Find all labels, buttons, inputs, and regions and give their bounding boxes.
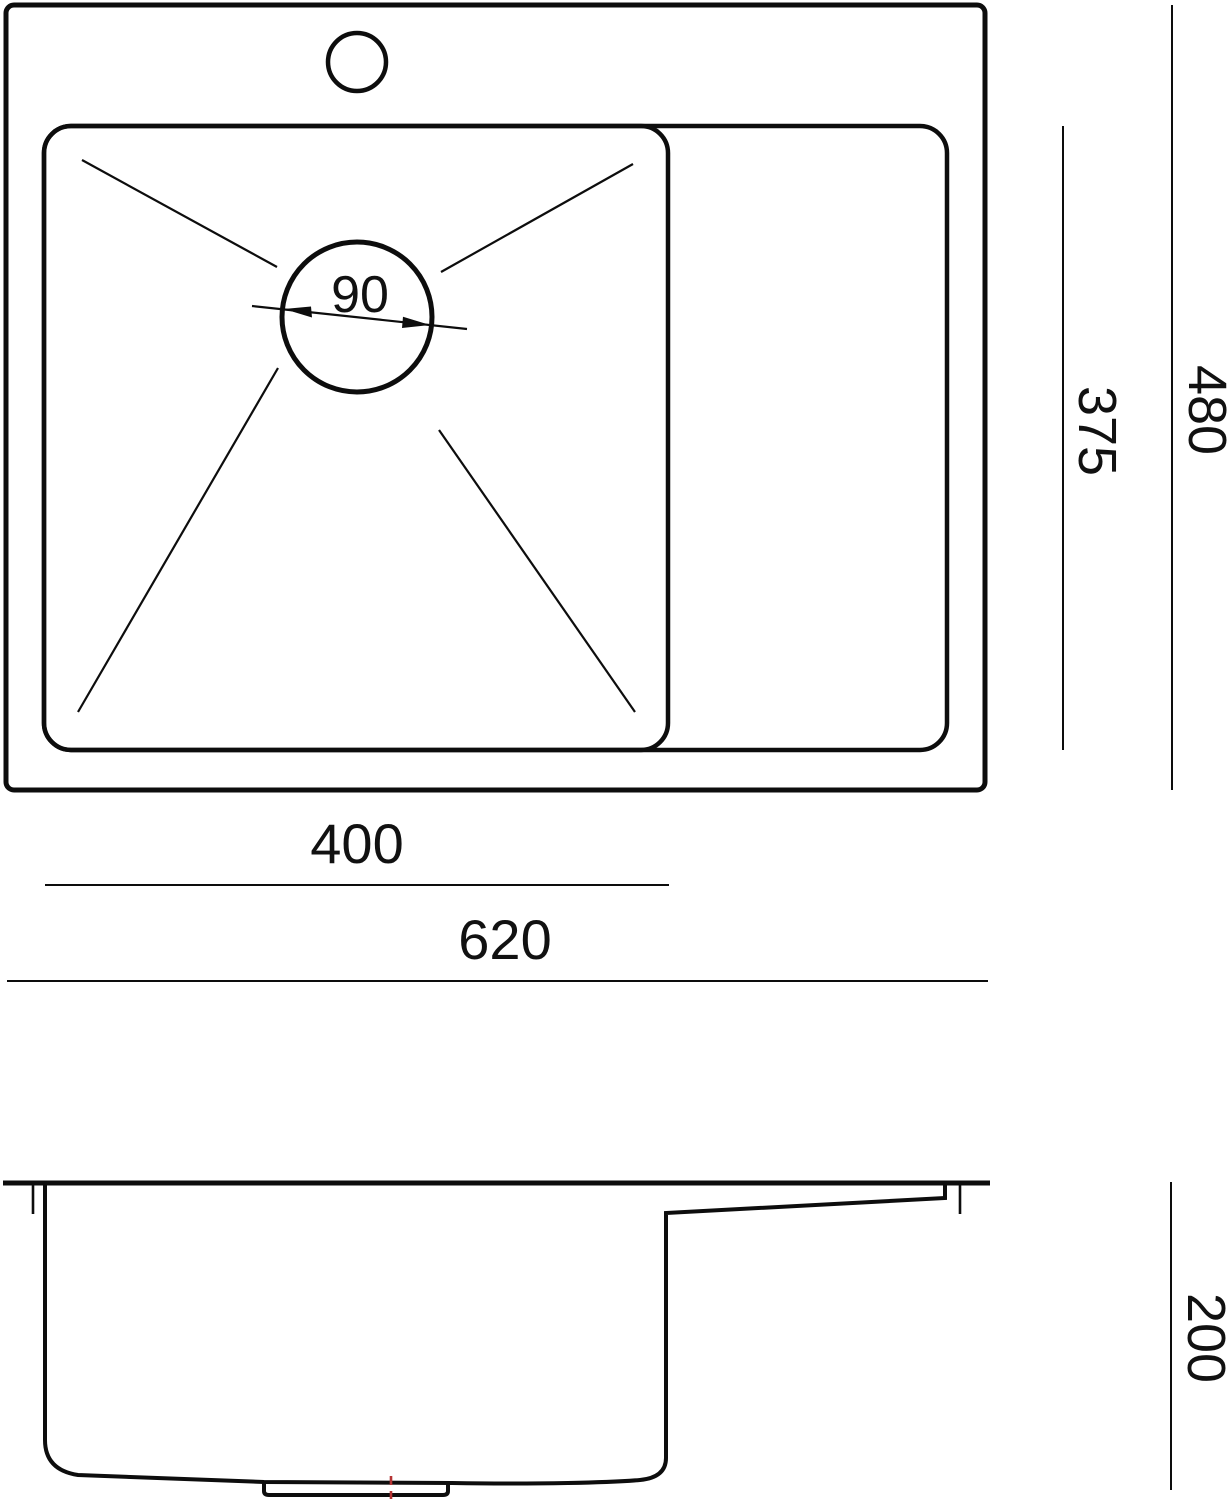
dim-label-200: 200 <box>1176 1293 1230 1383</box>
corner-leader-line-bottom-right <box>439 430 635 712</box>
dim-label-375: 375 <box>1067 386 1127 476</box>
bowl-outline <box>44 126 668 750</box>
outer-rim-outline <box>6 5 985 790</box>
dim-label-620: 620 <box>458 908 551 971</box>
side-section-view: 200 <box>3 1182 1230 1499</box>
faucet-hole <box>328 33 386 91</box>
plan-dimension-lines: 375 480 400 620 <box>7 5 1230 981</box>
drainboard-outline <box>44 126 947 750</box>
drain-diameter-label: 90 <box>331 266 389 324</box>
dim-label-400: 400 <box>310 812 403 875</box>
dim-label-480: 480 <box>1177 365 1230 455</box>
diameter-arrowhead-left-icon <box>284 307 312 318</box>
corner-leader-line-bottom-left <box>78 368 278 712</box>
drawing-svg: 90 375 480 400 620 200 <box>0 0 1230 1500</box>
sink-dimension-drawing: 90 375 480 400 620 200 <box>0 0 1230 1500</box>
corner-leader-line-top-left <box>82 160 277 267</box>
diameter-arrowhead-right-icon <box>402 317 430 328</box>
bowl-section-outline <box>45 1183 945 1484</box>
top-view: 90 <box>6 5 985 790</box>
corner-leader-line-top-right <box>441 164 633 272</box>
